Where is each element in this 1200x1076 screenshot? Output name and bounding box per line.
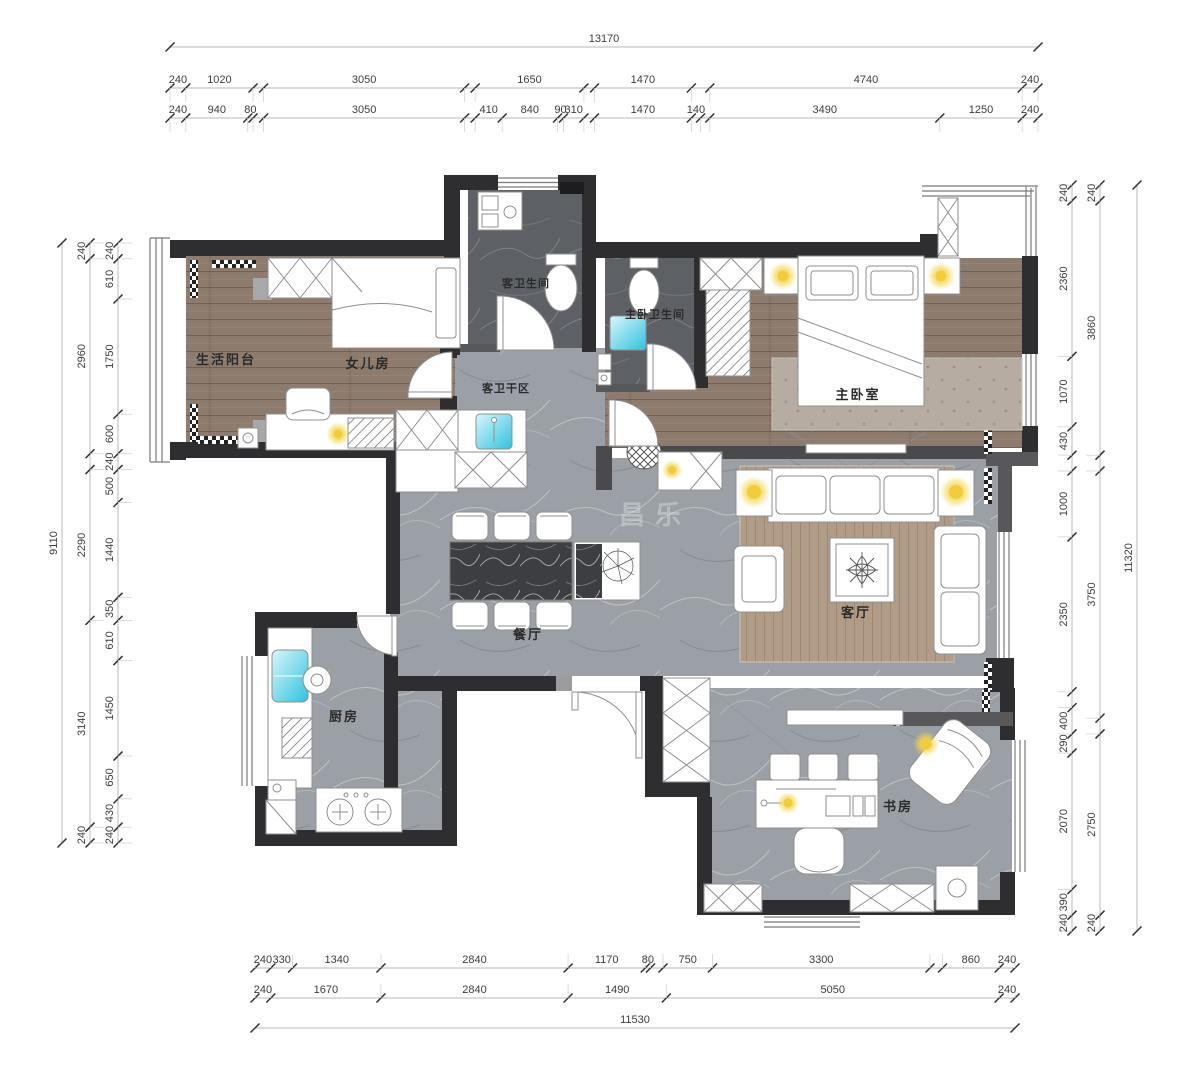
wardrobe — [268, 258, 332, 298]
dim-label: 240 — [254, 954, 272, 966]
bath-fixtures — [598, 354, 611, 385]
label-study: 书房 — [883, 799, 913, 814]
desk-chair — [286, 388, 330, 420]
label-dining: 餐厅 — [512, 627, 543, 642]
master-closet — [700, 258, 762, 290]
dim-label: 240 — [1086, 184, 1098, 202]
dim-label: 9110 — [48, 531, 60, 555]
dining-table — [450, 542, 640, 600]
dry-area-vanity — [456, 410, 526, 452]
coffee-table — [830, 538, 894, 602]
dim-label: 860 — [962, 954, 980, 966]
dim-label: 1450 — [104, 696, 116, 720]
dim-label: 430 — [1058, 432, 1070, 450]
dim-label: 1440 — [104, 538, 116, 562]
bed-single — [332, 258, 460, 348]
dim-label: 240 — [104, 242, 116, 260]
dim-label: 350 — [104, 600, 116, 618]
dim-label: 1250 — [969, 104, 993, 116]
dim-label: 2960 — [76, 344, 88, 368]
label-guest-bath-dry: 客卫干区 — [481, 381, 530, 395]
dim-label: 3050 — [352, 104, 376, 116]
armchair — [734, 546, 784, 612]
dim-label: 240 — [998, 984, 1016, 996]
dim-label: 750 — [679, 954, 697, 966]
lounge-lamp — [913, 731, 939, 757]
dim-label: 610 — [104, 270, 116, 288]
study-stools — [770, 754, 878, 780]
sink-master-bath — [610, 316, 646, 350]
dim-label: 3300 — [809, 954, 833, 966]
watermark: 昌乐 — [619, 500, 691, 530]
dim-label: 290 — [1058, 734, 1070, 752]
dim-label: 11320 — [1123, 543, 1135, 573]
dim-label: 240 — [1058, 914, 1070, 932]
dim-label: 2750 — [1086, 812, 1098, 836]
window-balcony-left — [148, 238, 170, 462]
dim-label: 240 — [104, 452, 116, 470]
dim-label: 330 — [273, 954, 291, 966]
dim-label: 1470 — [631, 74, 655, 86]
dim-label: 3140 — [76, 712, 88, 736]
dim-label: 3050 — [352, 74, 376, 86]
dim-label: 13170 — [589, 33, 620, 45]
dim-label: 400 — [1058, 712, 1070, 730]
toilet-master — [629, 258, 659, 314]
dim-label: 240 — [1058, 184, 1070, 202]
dim-label: 240 — [1021, 104, 1039, 116]
hall-cabinet-right — [658, 452, 722, 490]
label-master-bedroom: 主卧室 — [835, 387, 880, 402]
dim-label: 80 — [244, 104, 256, 116]
stove — [316, 788, 402, 832]
cutting-board — [282, 718, 312, 758]
dim-label: 240 — [1086, 914, 1098, 932]
dim-label: 940 — [208, 104, 226, 116]
kitchen-base-cabinet — [266, 780, 296, 834]
dim-label: 2070 — [1058, 809, 1070, 833]
sofa — [768, 468, 940, 522]
dim-label: 240 — [76, 242, 88, 260]
dim-label: 80 — [642, 954, 654, 966]
dim-label: 1170 — [595, 954, 619, 966]
study-desk — [756, 780, 878, 828]
label-master-bath: 主卧卫生间 — [625, 307, 685, 321]
label-balcony: 生活阳台 — [196, 352, 256, 367]
dim-label: 240 — [254, 984, 272, 996]
dim-label: 2360 — [1058, 266, 1070, 290]
label-living: 客厅 — [841, 605, 871, 620]
dim-label: 1670 — [314, 984, 338, 996]
bed-double — [798, 256, 924, 406]
dim-label: 240 — [169, 104, 187, 116]
study-shelf — [787, 710, 903, 725]
dim-label: 240 — [76, 826, 88, 844]
dim-label: 1070 — [1058, 379, 1070, 403]
dim-label: 240 — [1021, 74, 1039, 86]
window-master-bedroom-right — [1024, 354, 1040, 426]
dim-label: 600 — [104, 425, 116, 443]
linen-closet — [706, 290, 750, 376]
floor-drain — [238, 428, 258, 448]
dim-label: 2290 — [76, 533, 88, 557]
window-guest-bath-top — [498, 175, 558, 190]
chaise — [934, 526, 986, 654]
dim-label: 2840 — [462, 954, 486, 966]
dim-label: 3860 — [1086, 316, 1098, 340]
dim-label: 390 — [1058, 893, 1070, 911]
dim-label: 11530 — [620, 1014, 650, 1026]
dim-label: 310 — [565, 104, 583, 116]
dim-label: 240 — [998, 954, 1016, 966]
dim-label: 430 — [104, 804, 116, 822]
tv-console — [806, 444, 906, 453]
dim-label: 3750 — [1086, 582, 1098, 606]
window-kitchen-left — [240, 656, 255, 786]
washing-machine — [936, 866, 978, 910]
dim-label: 4740 — [854, 74, 878, 86]
dim-label: 1000 — [1058, 492, 1070, 516]
label-guest-bath: 客卫生间 — [501, 276, 550, 290]
dim-label: 1750 — [104, 344, 116, 368]
dim-label: 840 — [521, 104, 539, 116]
window-study-right — [1013, 740, 1029, 872]
dim-label: 5050 — [821, 984, 845, 996]
window-living-right — [997, 532, 1013, 658]
dim-label: 650 — [104, 768, 116, 786]
dim-label: 240 — [104, 826, 116, 844]
dim-label: 1020 — [207, 74, 231, 86]
dim-label: 240 — [169, 74, 187, 86]
label-daughter-room: 女儿房 — [345, 356, 390, 371]
dim-label: 610 — [104, 631, 116, 649]
door-entry — [572, 692, 642, 758]
dim-label: 1470 — [631, 104, 655, 116]
vanity-cabinet — [478, 192, 522, 230]
desk-lamp — [326, 422, 350, 446]
floor-plan: 昌乐 生活阳台 女儿房 客卫生间 客卫干区 主卧卫生间 主卧室 餐厅 客厅 厨房… — [0, 0, 1200, 1076]
dim-label: 1650 — [517, 74, 541, 86]
office-chair — [794, 828, 844, 874]
bookshelf — [348, 418, 394, 448]
dim-label: 500 — [104, 477, 116, 495]
dim-label: 1490 — [605, 984, 629, 996]
shaft-cabinet — [663, 678, 710, 782]
dim-label: 1340 — [324, 954, 348, 966]
bay-wardrobe — [938, 198, 958, 256]
dim-label: 410 — [479, 104, 497, 116]
label-kitchen: 厨房 — [329, 709, 359, 724]
dim-label: 3490 — [813, 104, 837, 116]
dim-label: 140 — [687, 104, 705, 116]
window-study-bottom — [764, 915, 860, 930]
dim-label: 2350 — [1058, 602, 1070, 626]
dim-label: 2840 — [462, 984, 486, 996]
